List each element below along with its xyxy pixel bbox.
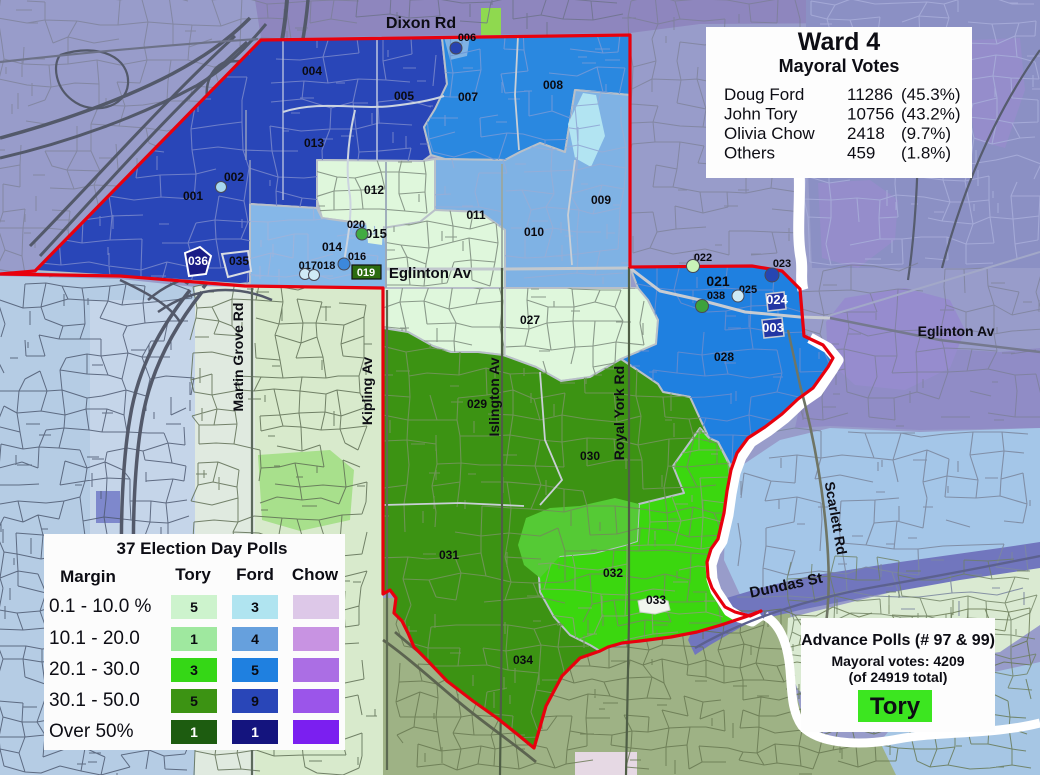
svg-text:(9.7%): (9.7%): [901, 124, 951, 143]
svg-text:012: 012: [364, 183, 384, 197]
svg-text:038: 038: [707, 290, 725, 302]
svg-text:1: 1: [190, 724, 198, 740]
svg-text:028: 028: [714, 350, 734, 364]
svg-text:Olivia Chow: Olivia Chow: [724, 124, 815, 143]
svg-text:014: 014: [322, 240, 342, 254]
svg-text:5: 5: [190, 599, 198, 615]
svg-text:(43.2%): (43.2%): [901, 105, 961, 124]
svg-text:019: 019: [357, 267, 375, 279]
svg-text:004: 004: [302, 64, 322, 78]
svg-text:007: 007: [458, 90, 478, 104]
svg-text:029: 029: [467, 397, 487, 411]
svg-text:Royal York Rd: Royal York Rd: [611, 366, 627, 460]
svg-text:3: 3: [251, 599, 259, 615]
svg-text:5: 5: [251, 662, 259, 678]
svg-text:0.1 - 10.0 %: 0.1 - 10.0 %: [49, 596, 152, 617]
svg-text:Eglinton Av: Eglinton Av: [389, 265, 472, 282]
svg-text:005: 005: [394, 89, 414, 103]
svg-text:009: 009: [591, 193, 611, 207]
svg-text:Eglinton Av: Eglinton Av: [918, 323, 995, 339]
svg-text:11286: 11286: [847, 85, 893, 104]
svg-text:Tory: Tory: [870, 693, 921, 720]
svg-text:Over 50%: Over 50%: [49, 721, 134, 742]
svg-text:036: 036: [188, 254, 208, 268]
svg-text:Islington Av: Islington Av: [486, 357, 502, 436]
svg-text:035: 035: [229, 254, 249, 268]
svg-text:1: 1: [251, 724, 259, 740]
svg-text:003: 003: [762, 320, 784, 335]
svg-text:9: 9: [251, 693, 259, 709]
svg-text:Advance Polls (# 97 & 99): Advance Polls (# 97 & 99): [801, 632, 995, 649]
svg-text:459: 459: [847, 144, 875, 163]
svg-text:Martin Grove Rd: Martin Grove Rd: [230, 303, 246, 412]
svg-text:3: 3: [190, 662, 198, 678]
svg-text:013: 013: [304, 136, 324, 150]
svg-text:006: 006: [458, 32, 476, 44]
svg-text:Ford: Ford: [236, 565, 274, 584]
svg-text:034: 034: [513, 653, 533, 667]
svg-text:2418: 2418: [847, 124, 885, 143]
svg-text:032: 032: [603, 566, 623, 580]
svg-text:008: 008: [543, 78, 563, 92]
svg-text:016: 016: [348, 251, 366, 263]
svg-text:011: 011: [466, 208, 486, 222]
svg-text:10.1 - 20.0: 10.1 - 20.0: [49, 628, 140, 649]
svg-text:John Tory: John Tory: [724, 105, 798, 124]
svg-text:001: 001: [183, 189, 203, 203]
svg-text:Doug Ford: Doug Ford: [724, 85, 804, 104]
svg-text:033: 033: [646, 593, 666, 607]
svg-text:Mayoral votes: 4209: Mayoral votes: 4209: [831, 653, 964, 669]
svg-text:Chow: Chow: [292, 565, 339, 584]
svg-text:Ward 4: Ward 4: [798, 28, 881, 56]
svg-text:Margin: Margin: [60, 567, 116, 586]
svg-text:30.1 - 50.0: 30.1 - 50.0: [49, 690, 140, 711]
svg-text:Others: Others: [724, 144, 775, 163]
svg-text:1: 1: [190, 631, 198, 647]
svg-text:027: 027: [520, 313, 540, 327]
svg-text:5: 5: [190, 693, 198, 709]
svg-text:4: 4: [251, 631, 259, 647]
svg-text:(1.8%): (1.8%): [901, 144, 951, 163]
svg-text:002: 002: [224, 170, 244, 184]
svg-text:021: 021: [706, 273, 730, 289]
svg-text:10756: 10756: [847, 105, 894, 124]
svg-text:023: 023: [773, 258, 791, 270]
svg-text:031: 031: [439, 548, 459, 562]
svg-text:010: 010: [524, 225, 544, 239]
svg-text:37 Election Day Polls: 37 Election Day Polls: [116, 539, 287, 558]
svg-text:030: 030: [580, 449, 600, 463]
svg-text:(45.3%): (45.3%): [901, 85, 961, 104]
svg-text:Tory: Tory: [175, 565, 211, 584]
svg-text:20.1 - 30.0: 20.1 - 30.0: [49, 659, 140, 680]
svg-text:Mayoral Votes: Mayoral Votes: [779, 56, 900, 76]
svg-text:Dixon Rd: Dixon Rd: [386, 15, 456, 32]
svg-text:024: 024: [766, 292, 788, 307]
svg-text:(of 24919 total): (of 24919 total): [849, 669, 948, 685]
svg-text:Kipling Av: Kipling Av: [359, 357, 375, 425]
